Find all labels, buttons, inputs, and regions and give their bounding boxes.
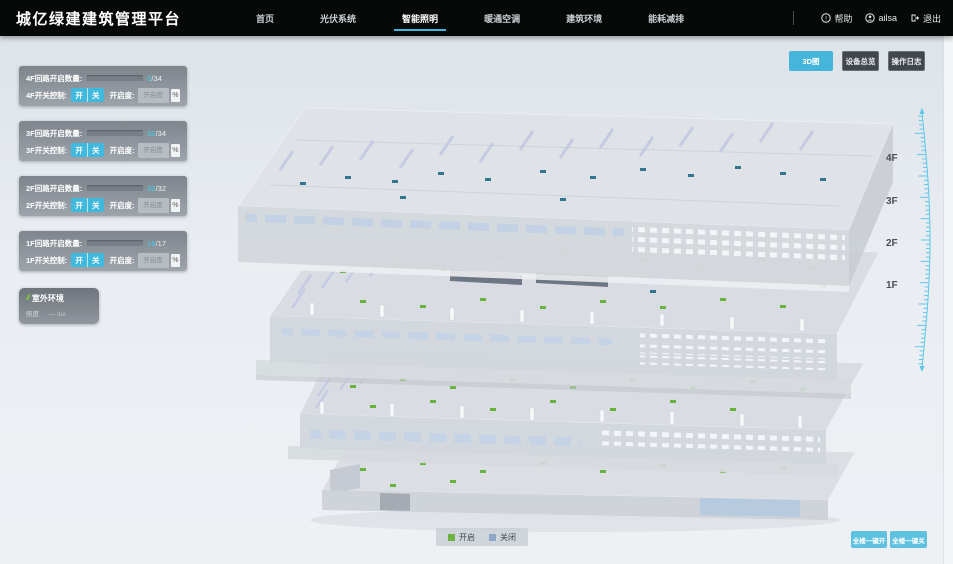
floor-label-2f[interactable]: 2F <box>886 238 898 249</box>
dim-input[interactable] <box>138 253 169 268</box>
dim-label: 开启度: <box>110 90 135 101</box>
circuit-count-value: 16/17 <box>147 239 166 248</box>
dim-percent-button[interactable]: % <box>171 199 180 212</box>
outdoor-env-panel: /// 室外环境 照度 — lux <box>19 288 99 324</box>
floor-panel-1f: 1F回路开启数量: 16/17 1F开关控制: 开 关 开启度: % <box>19 231 187 271</box>
topbar-right: ! 帮助 ailsa 退出 <box>793 11 941 25</box>
all-off-button[interactable]: 全楼一键关 <box>890 531 927 548</box>
top-bar: 城亿绿建建筑管理平台 首页 光伏系统 智能照明 暖通空调 建筑环境 能耗减排 !… <box>0 0 953 36</box>
switch-off-button[interactable]: 关 <box>87 88 104 102</box>
circuit-count-label: 4F回路开启数量: <box>26 73 82 84</box>
logout-icon <box>910 13 920 23</box>
floor-panel-4f: 4F回路开启数量: 0/34 4F开关控制: 开 关 开启度: % <box>19 66 187 106</box>
switch-control-label: 3F开关控制: <box>26 145 67 156</box>
dim-input[interactable] <box>138 143 169 158</box>
switch-off-button[interactable]: 关 <box>87 198 104 212</box>
legend-off-swatch <box>489 534 496 541</box>
scrollbar[interactable] <box>943 36 953 564</box>
floor-label-1f[interactable]: 1F <box>886 280 898 291</box>
circuit-progress-bar <box>87 240 143 246</box>
outdoor-env-icon: /// <box>26 295 29 302</box>
floor-panel-2f: 2F回路开启数量: 32/32 2F开关控制: 开 关 开启度: % <box>19 176 187 216</box>
device-overview-button[interactable]: 设备总览 <box>842 51 879 71</box>
floor-label-4f[interactable]: 4F <box>886 153 898 164</box>
switch-control-label: 1F开关控制: <box>26 255 67 266</box>
dim-label: 开启度: <box>110 255 135 266</box>
floor-4f-model <box>238 108 893 292</box>
topbar-divider <box>793 11 794 25</box>
view-3d-button[interactable]: 3D图 <box>789 51 833 71</box>
legend-on-swatch <box>448 534 455 541</box>
main-nav: 首页 光伏系统 智能照明 暖通空调 建筑环境 能耗减排 <box>233 0 707 36</box>
user-icon <box>865 13 875 23</box>
status-legend: 开启 关闭 <box>436 528 528 546</box>
switch-on-button[interactable]: 开 <box>71 198 87 212</box>
switch-off-button[interactable]: 关 <box>87 143 104 157</box>
circuit-progress-bar <box>87 130 143 136</box>
outdoor-env-title: 室外环境 <box>32 293 64 304</box>
dim-input[interactable] <box>138 88 169 103</box>
circuit-count-value: 0/34 <box>147 74 162 83</box>
circuit-count-label: 2F回路开启数量: <box>26 183 82 194</box>
circuit-progress-bar <box>87 185 143 191</box>
switch-on-button[interactable]: 开 <box>71 253 87 267</box>
circuit-count-value: 32/32 <box>147 184 166 193</box>
illuminance-value: — lux <box>49 311 66 318</box>
dim-label: 开启度: <box>110 145 135 156</box>
operation-log-button[interactable]: 操作日志 <box>888 51 925 71</box>
switch-off-button[interactable]: 关 <box>87 253 104 267</box>
dim-percent-button[interactable]: % <box>171 144 180 157</box>
nav-building-env[interactable]: 建筑环境 <box>566 0 602 36</box>
view-switcher: 3D图 设备总览 操作日志 <box>789 51 925 71</box>
nav-smart-lighting[interactable]: 智能照明 <box>402 0 438 36</box>
dim-percent-button[interactable]: % <box>171 254 180 267</box>
nav-energy[interactable]: 能耗减排 <box>648 0 684 36</box>
nav-pv-system[interactable]: 光伏系统 <box>320 0 356 36</box>
logout-button[interactable]: 退出 <box>910 12 941 25</box>
app-title: 城亿绿建建筑管理平台 <box>16 8 181 29</box>
switch-control-label: 4F开关控制: <box>26 90 67 101</box>
all-on-button[interactable]: 全楼一键开 <box>851 531 887 548</box>
help-button[interactable]: ! 帮助 <box>821 12 852 25</box>
svg-text:!: ! <box>826 15 828 22</box>
legend-on: 开启 <box>448 532 475 543</box>
circuit-count-value: 32/34 <box>147 129 166 138</box>
switch-on-button[interactable]: 开 <box>71 143 87 157</box>
dim-percent-button[interactable]: % <box>171 89 180 102</box>
circuit-progress-bar <box>87 75 143 81</box>
help-icon: ! <box>821 13 831 23</box>
dim-label: 开启度: <box>110 200 135 211</box>
user-menu[interactable]: ailsa <box>865 13 897 23</box>
nav-hvac[interactable]: 暖通空调 <box>484 0 520 36</box>
floor-panel-3f: 3F回路开启数量: 32/34 3F开关控制: 开 关 开启度: % <box>19 121 187 161</box>
switch-on-button[interactable]: 开 <box>71 88 87 102</box>
circuit-count-label: 1F回路开启数量: <box>26 238 82 249</box>
switch-control-label: 2F开关控制: <box>26 200 67 211</box>
legend-off: 关闭 <box>489 532 516 543</box>
nav-home[interactable]: 首页 <box>256 0 274 36</box>
dim-input[interactable] <box>138 198 169 213</box>
floor-label-3f[interactable]: 3F <box>886 196 898 207</box>
circuit-count-label: 3F回路开启数量: <box>26 128 82 139</box>
illuminance-label: 照度 <box>26 308 39 318</box>
